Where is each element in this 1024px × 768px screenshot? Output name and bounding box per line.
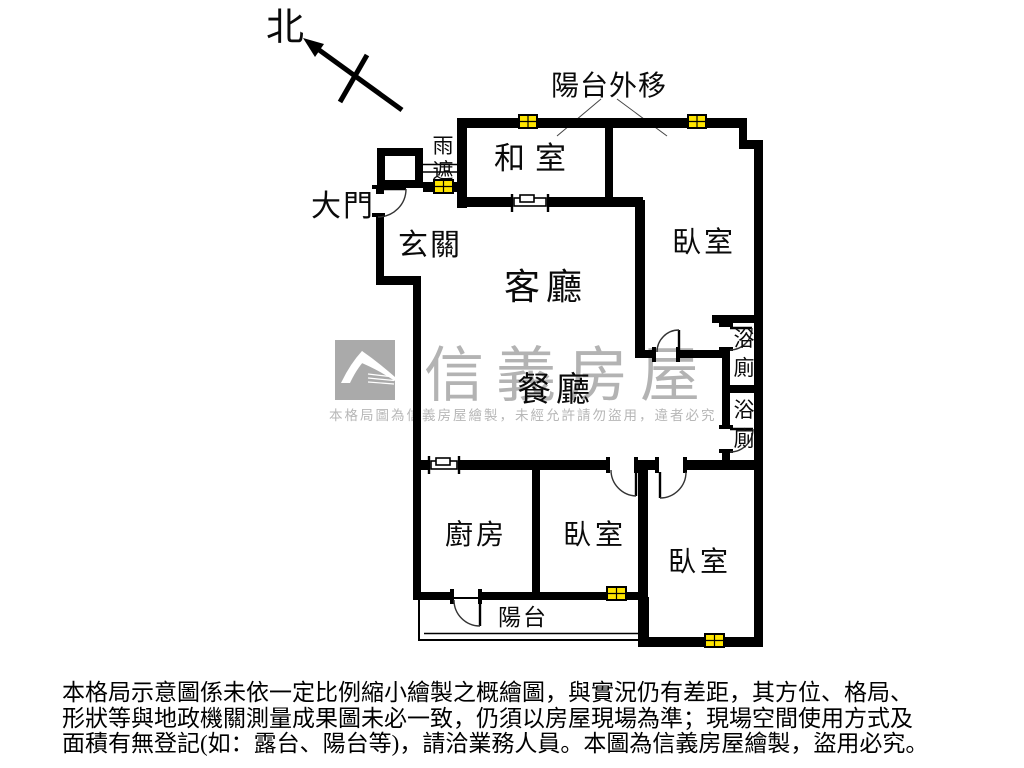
wall-tatami-left (457, 118, 467, 208)
room-label-entry: 玄關 (398, 229, 462, 262)
disclaimer-line-1: 本格局示意圖係未依一定比例縮小繪製之概繪圖，與實況仍有差距，其方位、格局、 (62, 680, 974, 706)
room-label-living: 客廳 (504, 266, 588, 307)
rain-cover-label-1: 雨 (433, 135, 454, 158)
disclaimer-text: 本格局示意圖係未依一定比例縮小繪製之概繪圖，與實況仍有差距，其方位、格局、 形狀… (62, 680, 974, 757)
wall-bath-top (712, 315, 763, 323)
wall-left-upper (376, 214, 384, 284)
door-symbol-bedroom-bottom-right (655, 457, 687, 498)
north-cross-line (340, 55, 367, 102)
door-symbol-kitchen-balcony (450, 589, 482, 626)
room-label-dining: 餐廳 (517, 371, 595, 409)
wall-left-lower (413, 276, 421, 468)
wall-right (754, 140, 763, 647)
room-label-kitchen: 廚房 (445, 519, 507, 550)
wall-kitchen-left (413, 460, 421, 600)
wall-living-bedroom-divider (635, 200, 645, 358)
wall-bath-middle (722, 385, 763, 393)
north-indicator: 北 (266, 7, 402, 110)
room-label-bedroom-top-right: 臥室 (672, 226, 736, 259)
north-label: 北 (266, 7, 304, 49)
balcony-out-pointer-left (557, 99, 601, 136)
window-symbol-dining (429, 456, 459, 474)
window-symbol-bedroom-right (705, 634, 724, 647)
main-door-label: 大門 (311, 190, 375, 223)
window-symbol-top-right (688, 115, 706, 128)
wall-tatami-right (605, 118, 613, 206)
door-symbol-bedroom-bottom-middle (606, 457, 638, 496)
wall-tatami-bottom-b (548, 197, 643, 207)
rain-cover-label-2: 遮 (433, 160, 454, 183)
balcony-out-label: 陽台外移 (551, 70, 667, 101)
room-label-bath-lower-2: 廁 (734, 428, 755, 451)
balcony-out-pointer-right (617, 99, 667, 136)
floor-plan-page: 信義房屋 本格局圖為信義房屋繪製，未經允許請勿盜用，違者必究 北 陽台外移 (0, 0, 1024, 768)
watermark-notice-text: 本格局圖為信義房屋繪製，未經允許請勿盜用，違者必究 (329, 407, 717, 423)
disclaimer-line-3: 面積有無登記(如：露台、陽台等)，請洽業務人員。本圖為信義房屋繪製，盜用必究。 (62, 731, 974, 757)
wall-tatami-bottom-a (457, 197, 512, 207)
room-label-bedroom-bottom-middle: 臥室 (563, 519, 627, 550)
disclaimer-line-2: 形狀等與地政機關測量成果圖未必一致，仍須以房屋現場為準；現場空間使用方式及 (62, 706, 974, 732)
sliding-door-symbol-tatami (512, 194, 548, 212)
room-label-bath-upper-2: 廁 (734, 357, 755, 380)
wall-bedroom-right-bottom (638, 637, 763, 647)
wall-kitchen-bedroom-divider (532, 468, 540, 596)
floor-plan-drawing: 信義房屋 本格局圖為信義房屋繪製，未經允許請勿盜用，違者必究 北 陽台外移 (0, 0, 1024, 670)
room-label-tatami: 和室 (494, 141, 576, 176)
wall-bedroom-right-left (638, 460, 648, 647)
window-symbol-top-left (519, 115, 537, 128)
room-label-bath-upper-1: 浴 (734, 328, 755, 351)
north-arrow-icon (315, 47, 402, 110)
window-symbol-bedroom-middle (607, 587, 626, 600)
wall-dining-bottom-d (684, 460, 763, 470)
room-label-balcony: 陽台 (498, 604, 548, 630)
room-label-bedroom-bottom-right: 臥室 (668, 546, 732, 577)
room-label-bath-lower-1: 浴 (734, 399, 755, 422)
